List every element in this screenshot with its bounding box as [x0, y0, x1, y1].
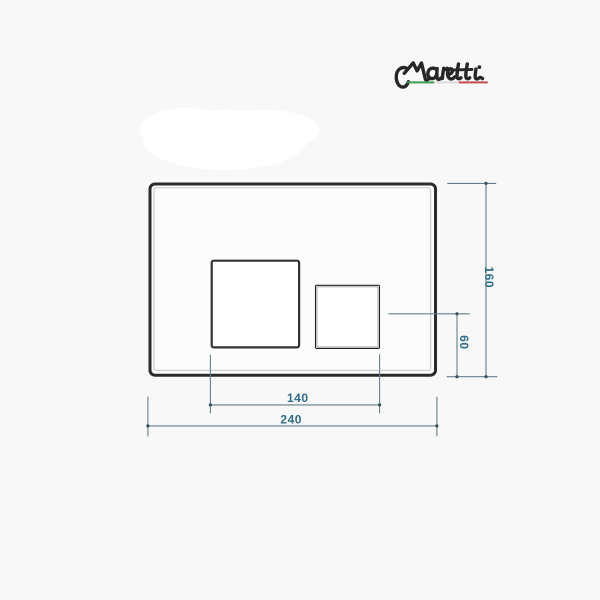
svg-text:140: 140 [287, 391, 309, 405]
svg-text:240: 240 [280, 413, 302, 427]
svg-text:60: 60 [457, 335, 471, 349]
svg-text:160: 160 [482, 266, 496, 288]
